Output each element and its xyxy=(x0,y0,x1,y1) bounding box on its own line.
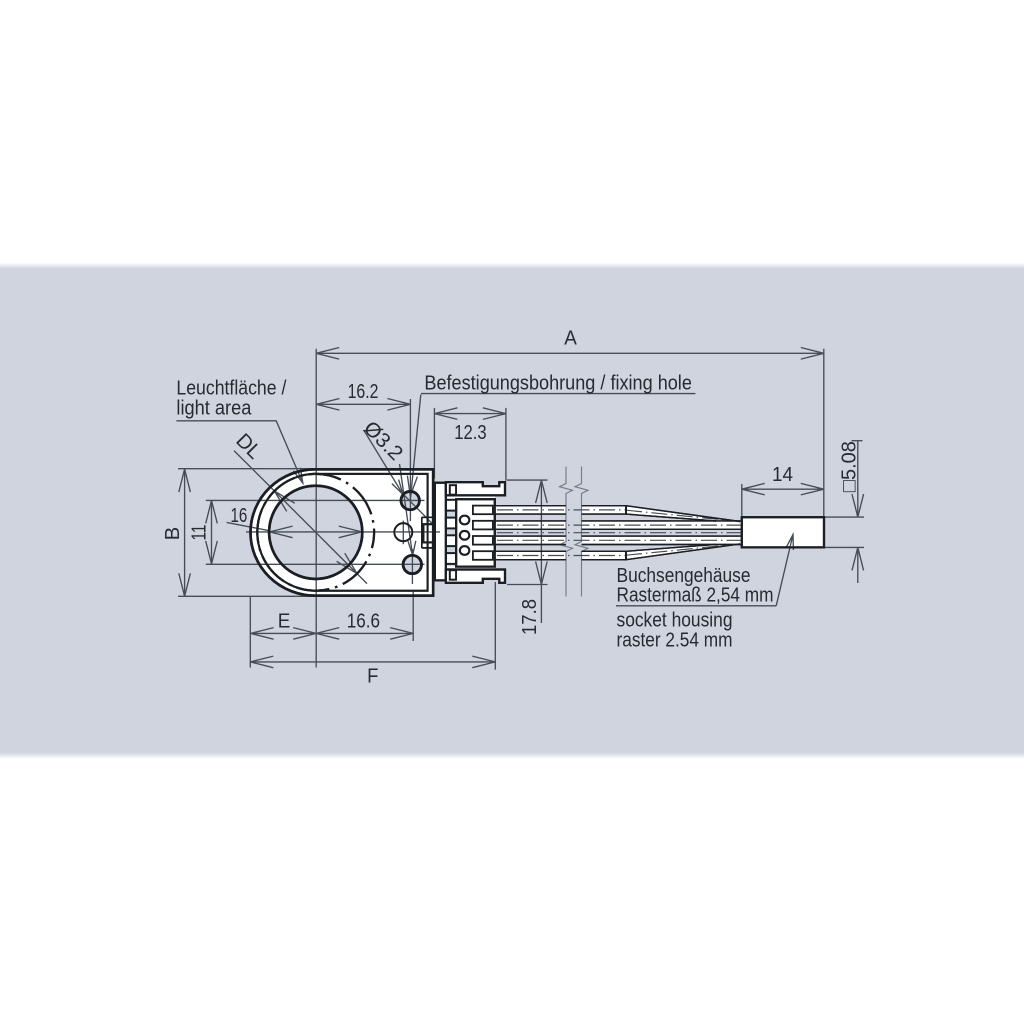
svg-text:E: E xyxy=(278,609,291,632)
svg-text:Befestigungsbohrung / fixing h: Befestigungsbohrung / fixing hole xyxy=(424,371,692,394)
svg-text:11: 11 xyxy=(188,525,211,541)
svg-text:16: 16 xyxy=(231,504,248,527)
svg-text:Rastermaß 2,54 mm: Rastermaß 2,54 mm xyxy=(617,583,774,606)
svg-text:17.8: 17.8 xyxy=(518,599,541,635)
svg-text:B: B xyxy=(161,527,184,541)
svg-text:14: 14 xyxy=(772,463,793,486)
svg-text:16.6: 16.6 xyxy=(347,609,380,632)
svg-text:light area: light area xyxy=(176,397,252,420)
svg-text:A: A xyxy=(564,327,577,350)
svg-text:raster 2.54 mm: raster 2.54 mm xyxy=(617,629,733,652)
svg-text:16.2: 16.2 xyxy=(348,380,379,403)
svg-text:□5.08: □5.08 xyxy=(838,441,861,492)
svg-text:12.3: 12.3 xyxy=(454,421,486,444)
svg-text:F: F xyxy=(367,665,378,688)
